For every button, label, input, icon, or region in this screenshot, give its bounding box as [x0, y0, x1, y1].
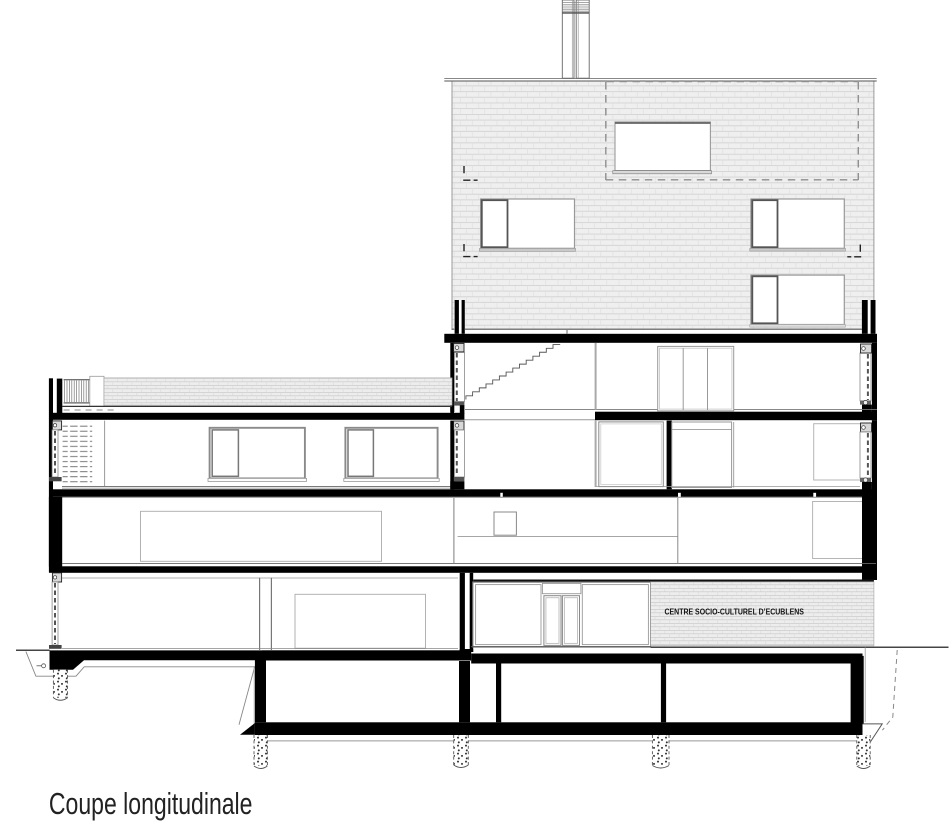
svg-text:CENTRE SOCIO-CULTUREL D’ECUBLE: CENTRE SOCIO-CULTUREL D’ECUBLENS: [665, 606, 805, 616]
svg-text:Coupe longitudinale: Coupe longitudinale: [49, 787, 253, 821]
